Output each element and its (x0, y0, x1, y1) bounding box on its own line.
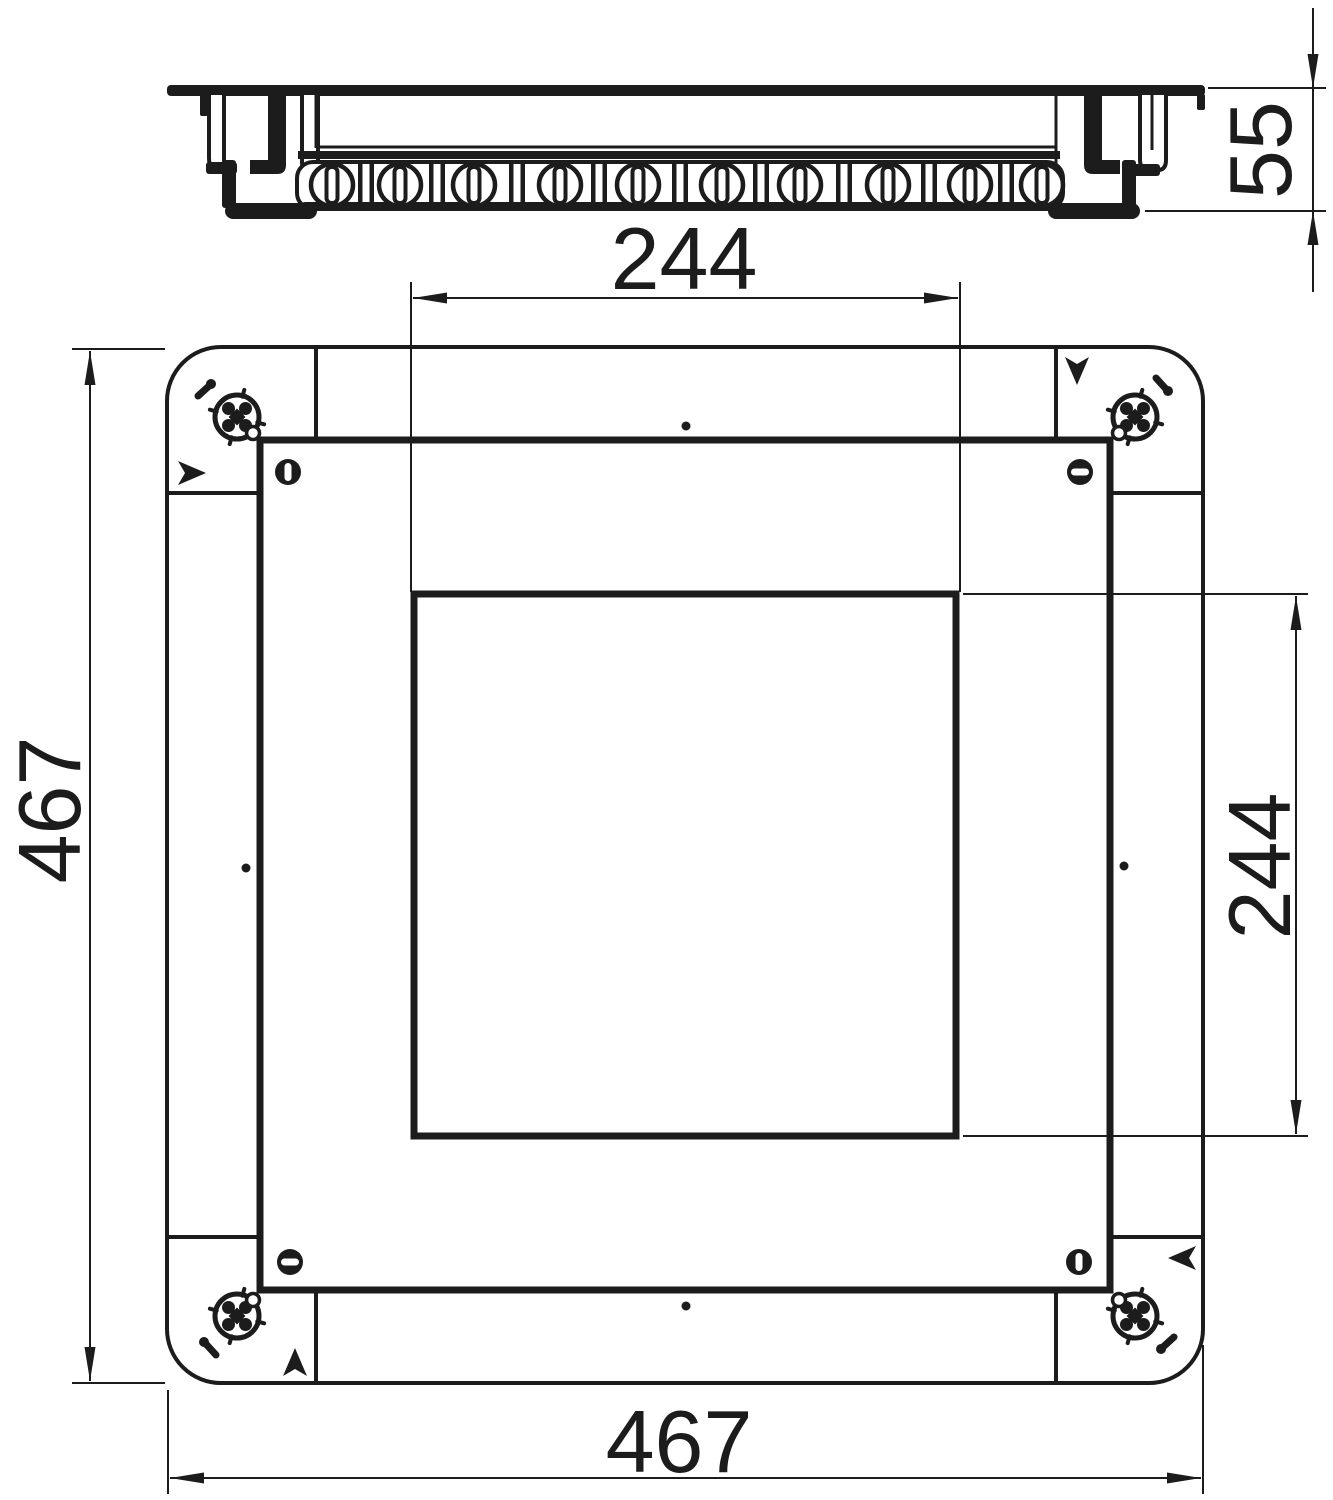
side-cover-plate (167, 85, 1205, 96)
center-mark-right (1120, 862, 1129, 871)
knockout (1021, 164, 1063, 206)
dimension-label-device-height: 55 (1211, 101, 1310, 199)
knockout (453, 164, 495, 206)
dimension-overall-height: 467 (0, 349, 165, 1383)
knockout-band (297, 162, 1063, 211)
dimension-label-opening-height: 244 (1210, 793, 1309, 940)
plate-left-lip (200, 94, 208, 116)
knockout (949, 164, 991, 206)
slotted-screw-top-left (275, 459, 301, 485)
drawing-page: 55 244 467 244 467 (0, 0, 1333, 1500)
plan-view (167, 347, 1203, 1383)
slotted-screw-bottom-left (277, 1249, 303, 1275)
knockout (701, 164, 743, 206)
center-mark-bottom (682, 1302, 691, 1311)
central-opening (414, 594, 956, 1136)
knockout (779, 164, 821, 206)
knockout (539, 164, 581, 206)
side-body (298, 95, 1060, 163)
dimension-drawing: 55 244 467 244 467 (0, 0, 1333, 1500)
knockout (867, 164, 909, 206)
knockout (311, 164, 353, 206)
knockout (617, 164, 659, 206)
plate-right-lip (1197, 94, 1205, 110)
side-view (167, 85, 1205, 219)
slotted-screw-top-right (1067, 459, 1093, 485)
right-clamp-bracket (1048, 95, 1166, 219)
knockout (379, 164, 421, 206)
dimension-device-height: 55 (1145, 8, 1326, 292)
center-mark-top (682, 422, 691, 431)
dimension-label-opening-width: 244 (611, 209, 758, 308)
slotted-screw-bottom-right (1066, 1249, 1092, 1275)
dimension-label-overall-height: 467 (0, 737, 99, 884)
center-mark-left (242, 864, 251, 873)
dimension-label-overall-width: 467 (606, 1392, 753, 1491)
